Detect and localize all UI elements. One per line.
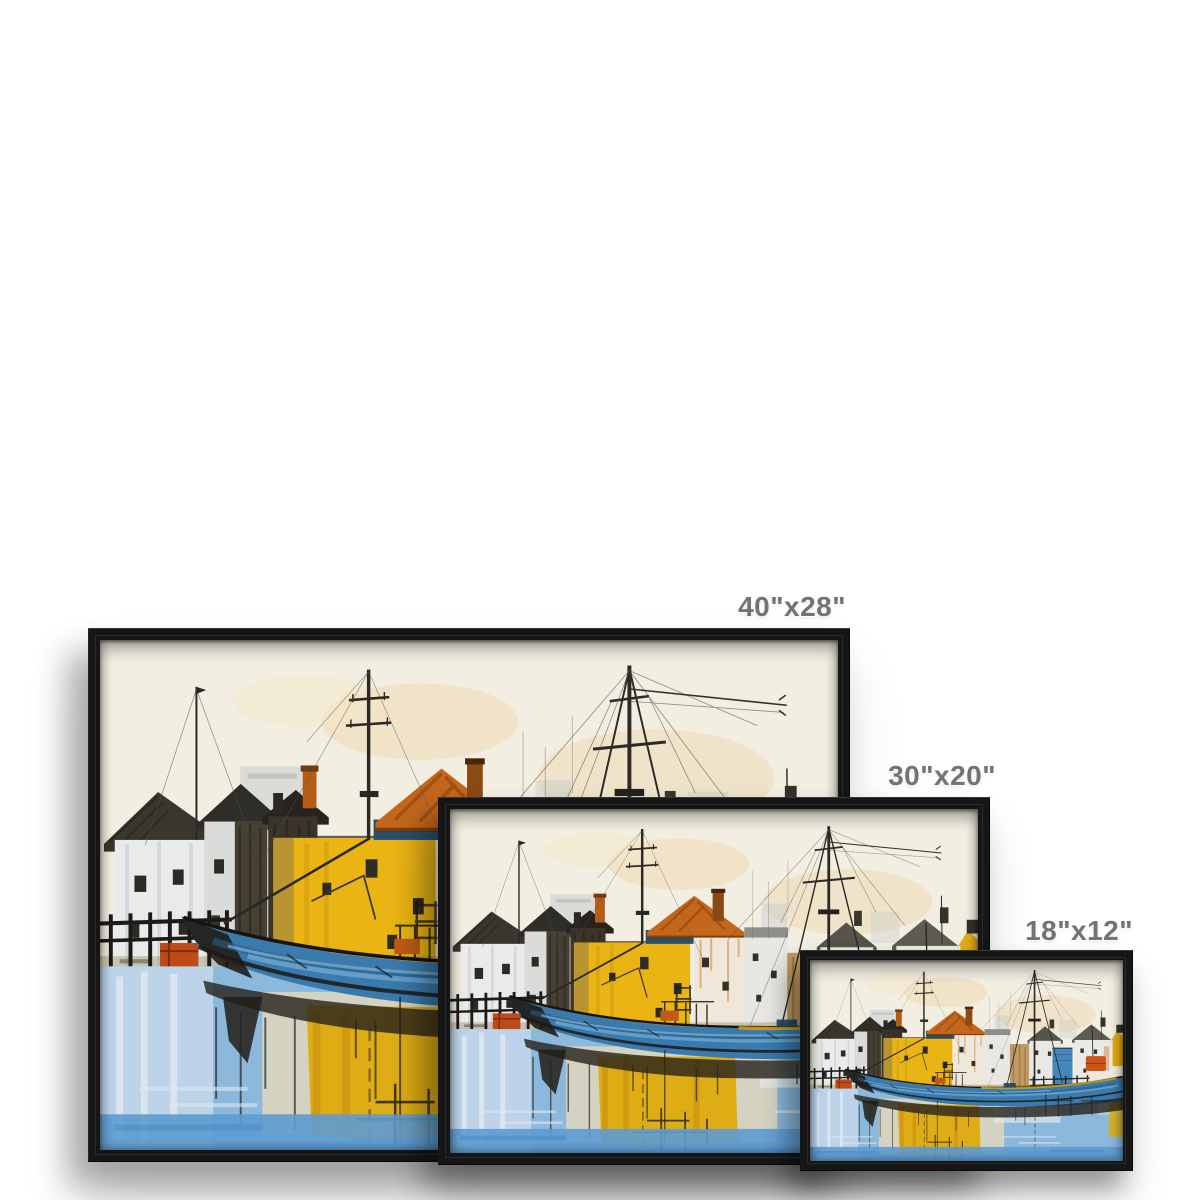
size-label-18x12: 18"x12" [1025, 915, 1133, 947]
canvas-18x12 [810, 960, 1123, 1161]
harbor-painting [810, 960, 1123, 1161]
framed-canvas-18x12 [800, 950, 1133, 1171]
size-label-40x28: 40"x28" [738, 591, 846, 623]
product-mockup: 40"x28" 30"x20" 18"x12" [0, 0, 1200, 1200]
size-label-30x20: 30"x20" [888, 760, 996, 792]
